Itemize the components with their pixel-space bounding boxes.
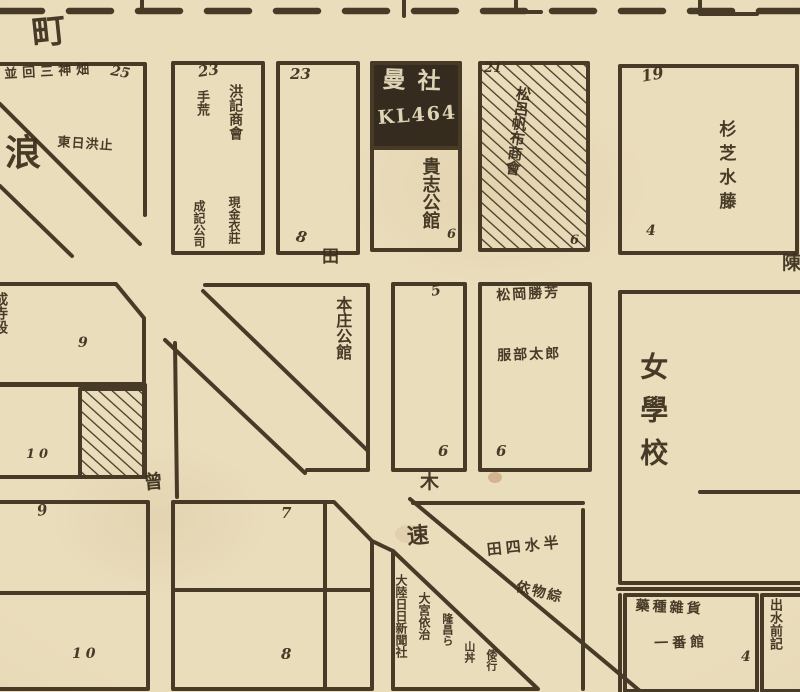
block-b4-sub-number: 6 [570, 234, 579, 248]
sign-text-line1: 曼社 [382, 68, 453, 95]
block-m2-sub-number: 6 [438, 443, 448, 459]
naniwa-road-edge-2c [372, 541, 393, 551]
block-m3-owner-2: 服部太郎 [497, 347, 561, 364]
girls-school-label: 女學校 [637, 352, 667, 481]
block-m2-outline [393, 284, 465, 470]
naniwa-road-edge-1a [0, 104, 140, 244]
block-m3-sub-number: 6 [496, 443, 506, 459]
block-k-shop-name: 出水前記 [767, 598, 781, 650]
yamadon-label: 山丼 [463, 641, 475, 663]
block-g-lot-1: 7 [281, 505, 291, 521]
street-label-naniwa-1: 浪 [5, 134, 41, 173]
block-b1-outline [173, 63, 263, 253]
street-label-chin: 陳 [782, 253, 800, 274]
block-e-lot-number: 10 [26, 448, 52, 462]
block-b5-lot-number: 19 [640, 64, 665, 85]
block-f-lot-2: 10 [72, 647, 99, 662]
dashed-boundary-line [0, 0, 800, 16]
omiya-label: 大宮依治 [417, 592, 430, 640]
naniwa-road-edge-2a [0, 186, 72, 256]
kishi-mansion-label: 貴志公館 [420, 157, 439, 229]
block-b1-shop-name-2: 手荒 [194, 90, 208, 116]
block-b4-outline [480, 63, 588, 250]
block-a-lot-number: 25 [109, 64, 131, 82]
naniwa-road-edge-2b [165, 340, 305, 473]
street-label-ki: 木 [420, 472, 439, 493]
triangle-block-outline [393, 551, 538, 689]
newspaper-office-label: 大陸日日新聞社 [394, 574, 407, 658]
wako-label: 倭行 [485, 649, 497, 671]
block-b5-sub-number: 4 [646, 224, 656, 239]
block-b2-outline [278, 63, 358, 253]
block-b5-owner-name: 杉芝水藤 [716, 120, 734, 216]
block-g-lot-2: 8 [281, 646, 291, 662]
block-b1-shop-name: 洪記商會 [227, 84, 242, 140]
block-d-lot-number: 9 [78, 336, 88, 351]
ryusho-label: 隆昌ら [441, 613, 453, 646]
street-edge-vertical [175, 343, 177, 497]
street-label-sou: 曾 [143, 471, 164, 493]
block-d-owner-name: 成寺段 [0, 292, 7, 334]
street-label-den: 田 [322, 248, 339, 266]
block-b1-shop-name-4: 成記公司 [192, 200, 205, 248]
hatched-lot [80, 389, 144, 477]
block-b1-shop-name-3: 現金衣莊 [227, 196, 240, 244]
kishi-lot-number: 6 [447, 228, 456, 242]
block-b4-lot-number: 21 [484, 62, 502, 76]
block-b1-lot-number: 23 [197, 61, 220, 80]
block-j-lot-number: 4 [741, 650, 751, 665]
block-b2-lot-number: 23 [290, 66, 311, 82]
block-j-shop-2: 一番館 [654, 635, 708, 652]
map-canvas: 町 浪 田 陳 曾 木 速 並回三神畑 25 東日洪止 23 洪記商會 手荒 現… [0, 0, 800, 692]
block-g-outline [173, 502, 372, 689]
street-label-machi: 町 [30, 12, 68, 52]
block-f-lot-1: 9 [36, 502, 49, 519]
street-label-haya: 速 [406, 524, 430, 550]
honjo-mansion-label: 本庄公館 [334, 296, 351, 360]
block-d-outline [0, 284, 144, 384]
